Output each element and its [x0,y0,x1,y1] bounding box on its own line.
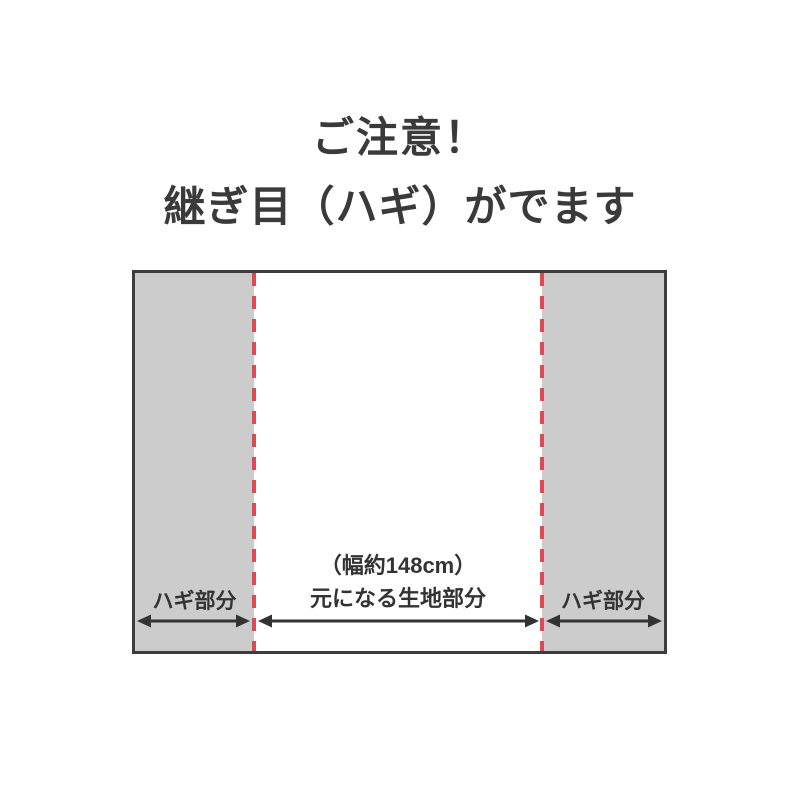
page: ご注意！ 継ぎ目（ハギ）がでます ハギ部分 （幅約148cm） 元になる生地部分… [0,0,800,800]
width-arrow-center [258,613,539,629]
base-fabric-label: 元になる生地部分 [256,581,540,613]
hagi-label-left: ハギ部分 [135,585,254,615]
hagi-label-right: ハギ部分 [542,585,664,615]
notice-title: ご注意！ [0,112,800,164]
notice-title-block: ご注意！ 継ぎ目（ハギ）がでます [0,112,800,233]
fabric-width-note: （幅約148cm） [256,548,540,580]
width-arrow-left [137,613,250,629]
notice-subtitle: 継ぎ目（ハギ）がでます [0,181,800,233]
width-arrow-right [546,613,662,629]
fabric-width-diagram-inner: ハギ部分 （幅約148cm） 元になる生地部分 ハギ部分 [135,273,664,651]
fabric-width-diagram: ハギ部分 （幅約148cm） 元になる生地部分 ハギ部分 [132,270,667,654]
